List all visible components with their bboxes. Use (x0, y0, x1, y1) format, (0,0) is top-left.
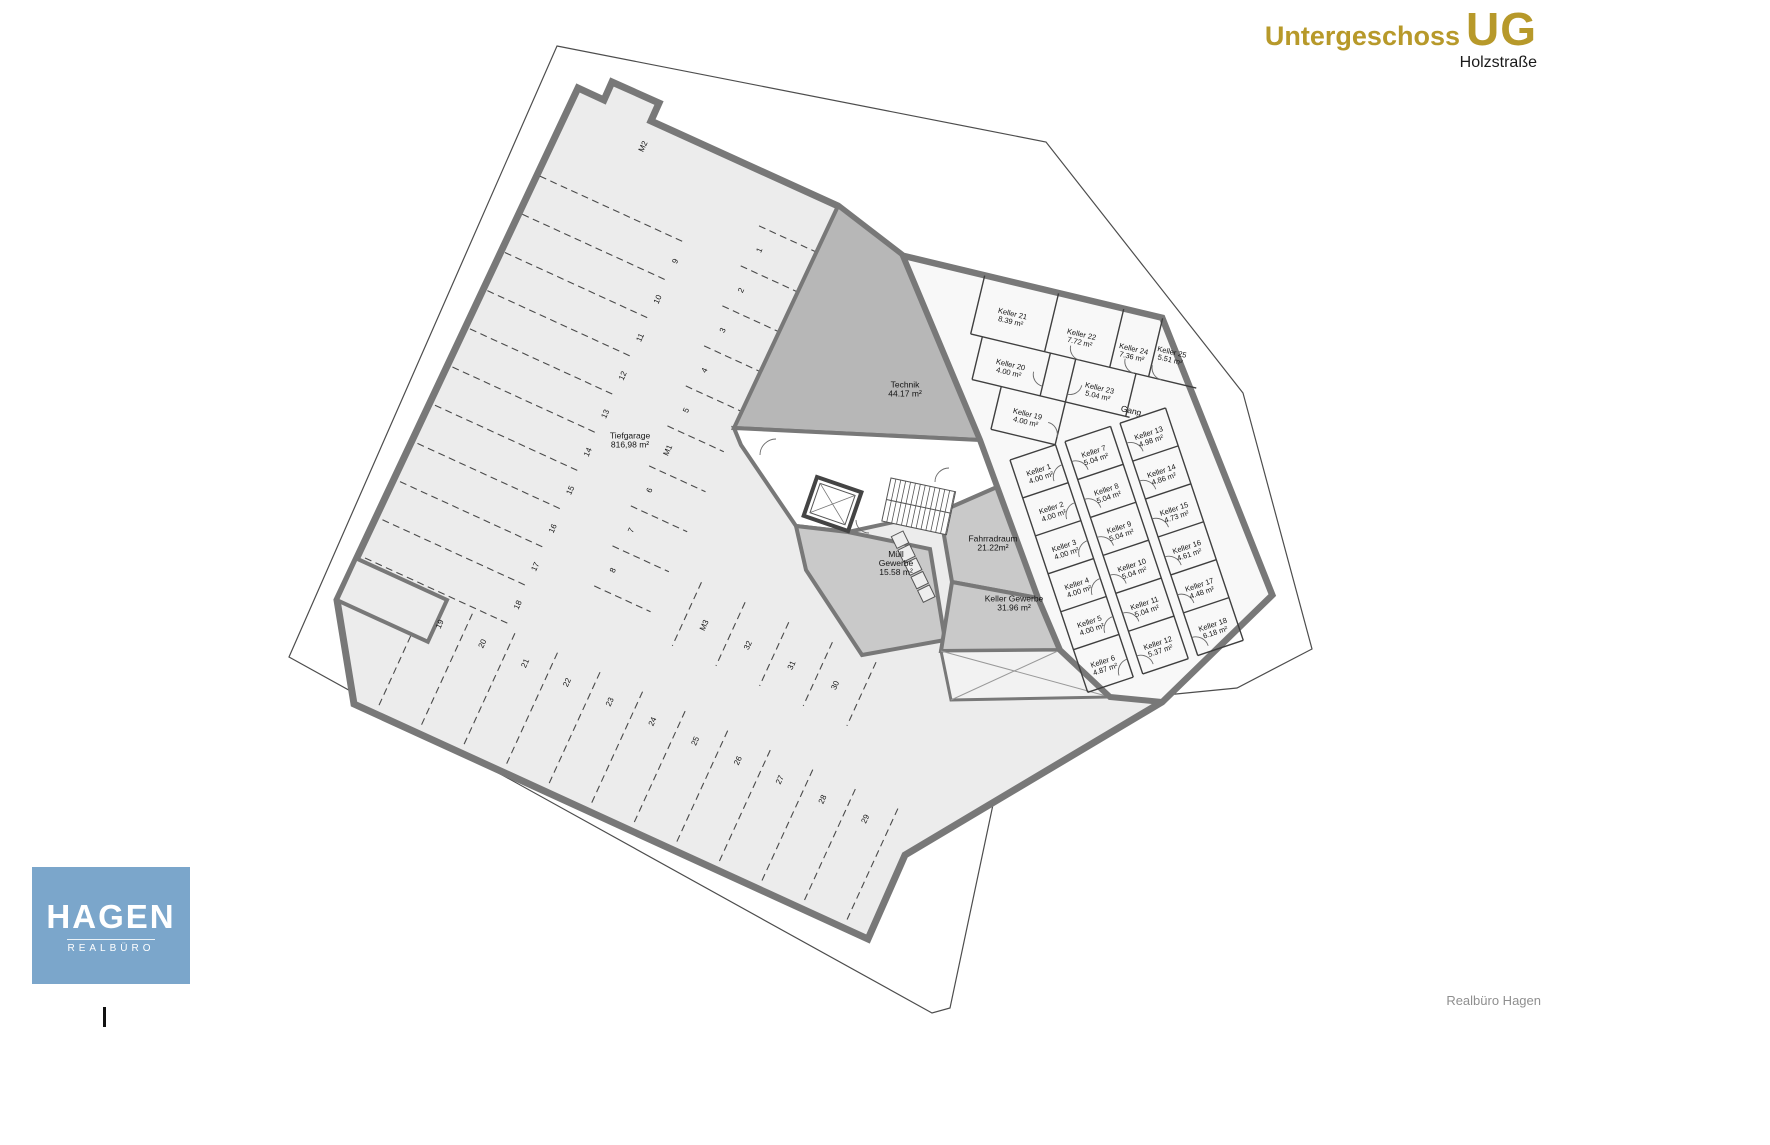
floorplan-drawing: M2910111213141516171812345M1678192021222… (0, 0, 1770, 1145)
room-label: Tiefgarage816,98 m² (610, 431, 651, 450)
floor-title: Untergeschoss (1265, 23, 1460, 50)
logo-name: HAGEN (46, 898, 175, 936)
floor-code: UG (1466, 6, 1537, 52)
credit-text: Realbüro Hagen (1446, 993, 1541, 1008)
room-label: Technik44.17 m² (888, 380, 922, 399)
scale-tick-mark (103, 1007, 106, 1027)
drawing-title-block: Untergeschoss UG Holzstraße (1265, 6, 1537, 71)
company-logo: HAGEN REALBÜRO (32, 867, 190, 984)
logo-subline: REALBÜRO (67, 939, 154, 954)
page: M2910111213141516171812345M1678192021222… (0, 0, 1770, 1145)
street-subtitle: Holzstraße (1265, 55, 1537, 71)
